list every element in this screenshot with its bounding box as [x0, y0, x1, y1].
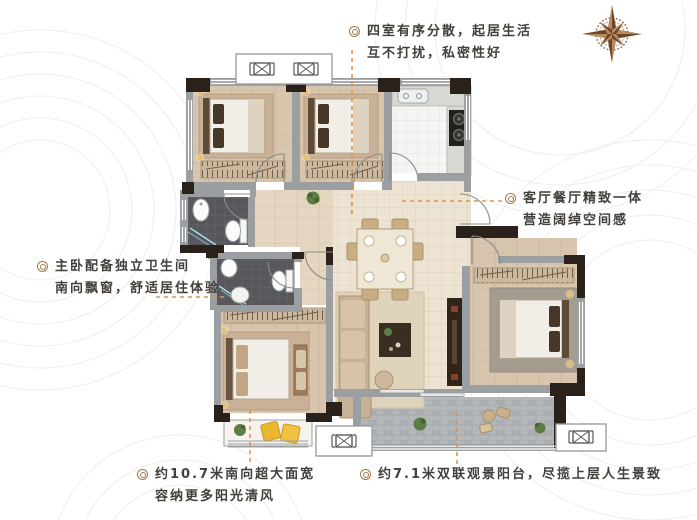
callout-living-dining: 客厅餐厅精致一体 营造阔绰空间感 — [505, 188, 643, 232]
wardrobe — [201, 161, 285, 178]
double-ring-bullet-icon — [137, 469, 148, 480]
callout-text: 营造阔绰空间感 — [523, 210, 643, 232]
callout-four-rooms: 四室有序分散，起居生活 互不打扰，私密性好 — [349, 21, 532, 65]
air-conditioner-platform-icon — [250, 63, 274, 75]
floor-plan-page: 四室有序分散，起居生活 互不打扰，私密性好 客厅餐厅精致一体 营造阔绰空间感 主… — [0, 0, 697, 520]
callout-text: 四室有序分散，起居生活 — [367, 21, 532, 43]
compass-rose-icon — [582, 5, 642, 63]
coffee-table — [379, 323, 411, 357]
callout-master-suite: 主卧配备独立卫生间 南向飘窗，舒适居住体验 — [37, 256, 220, 300]
hallway-floor — [252, 190, 334, 247]
air-conditioner-platform-icon — [294, 63, 318, 75]
wardrobe — [474, 268, 574, 283]
yellow-pillow — [260, 421, 281, 442]
double-ring-bullet-icon — [349, 26, 360, 37]
dining-furniture — [347, 219, 423, 300]
double-ring-bullet-icon — [360, 469, 371, 480]
bedroom-2-furniture — [196, 88, 286, 179]
callout-text: 南向飘窗，舒适居住体验 — [55, 278, 220, 300]
double-ring-bullet-icon — [505, 193, 516, 204]
callout-text: 约7.1米双联观景阳台，尽揽上层人生景致 — [378, 464, 662, 486]
wardrobe — [306, 161, 384, 178]
callout-south-facing-width: 约10.7米南向超大面宽 容纳更多阳光清风 — [137, 464, 315, 508]
double-ring-bullet-icon — [37, 261, 48, 272]
callout-text: 约10.7米南向超大面宽 — [155, 464, 315, 486]
bay-window — [224, 420, 312, 447]
bedroom-3-furniture — [302, 88, 385, 179]
callout-text: 主卧配备独立卫生间 — [55, 256, 220, 278]
callout-text: 互不打扰，私密性好 — [367, 43, 532, 65]
air-conditioner-platform-icon — [569, 431, 593, 443]
callout-text: 客厅餐厅精致一体 — [523, 188, 643, 210]
callout-balcony: 约7.1米双联观景阳台，尽揽上层人生景致 — [360, 464, 662, 486]
air-conditioner-platform-icon — [332, 435, 356, 447]
callout-text: 容纳更多阳光清风 — [155, 486, 315, 508]
hallway-plant — [307, 192, 320, 205]
